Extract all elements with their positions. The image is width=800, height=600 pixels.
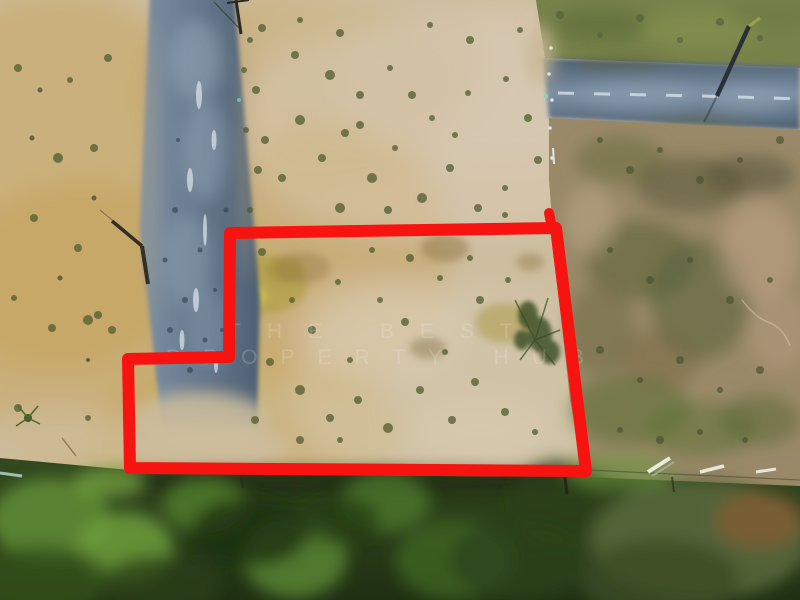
watermark-line-1: THE BEST [228, 320, 539, 343]
aerial-photo-land-plot: THE BEST PROPERTY HUB [0, 0, 800, 600]
scene-svg: THE BEST PROPERTY HUB [0, 0, 800, 600]
grass-top-right [536, 0, 800, 68]
plot-boundary-corner-stub [549, 213, 552, 228]
